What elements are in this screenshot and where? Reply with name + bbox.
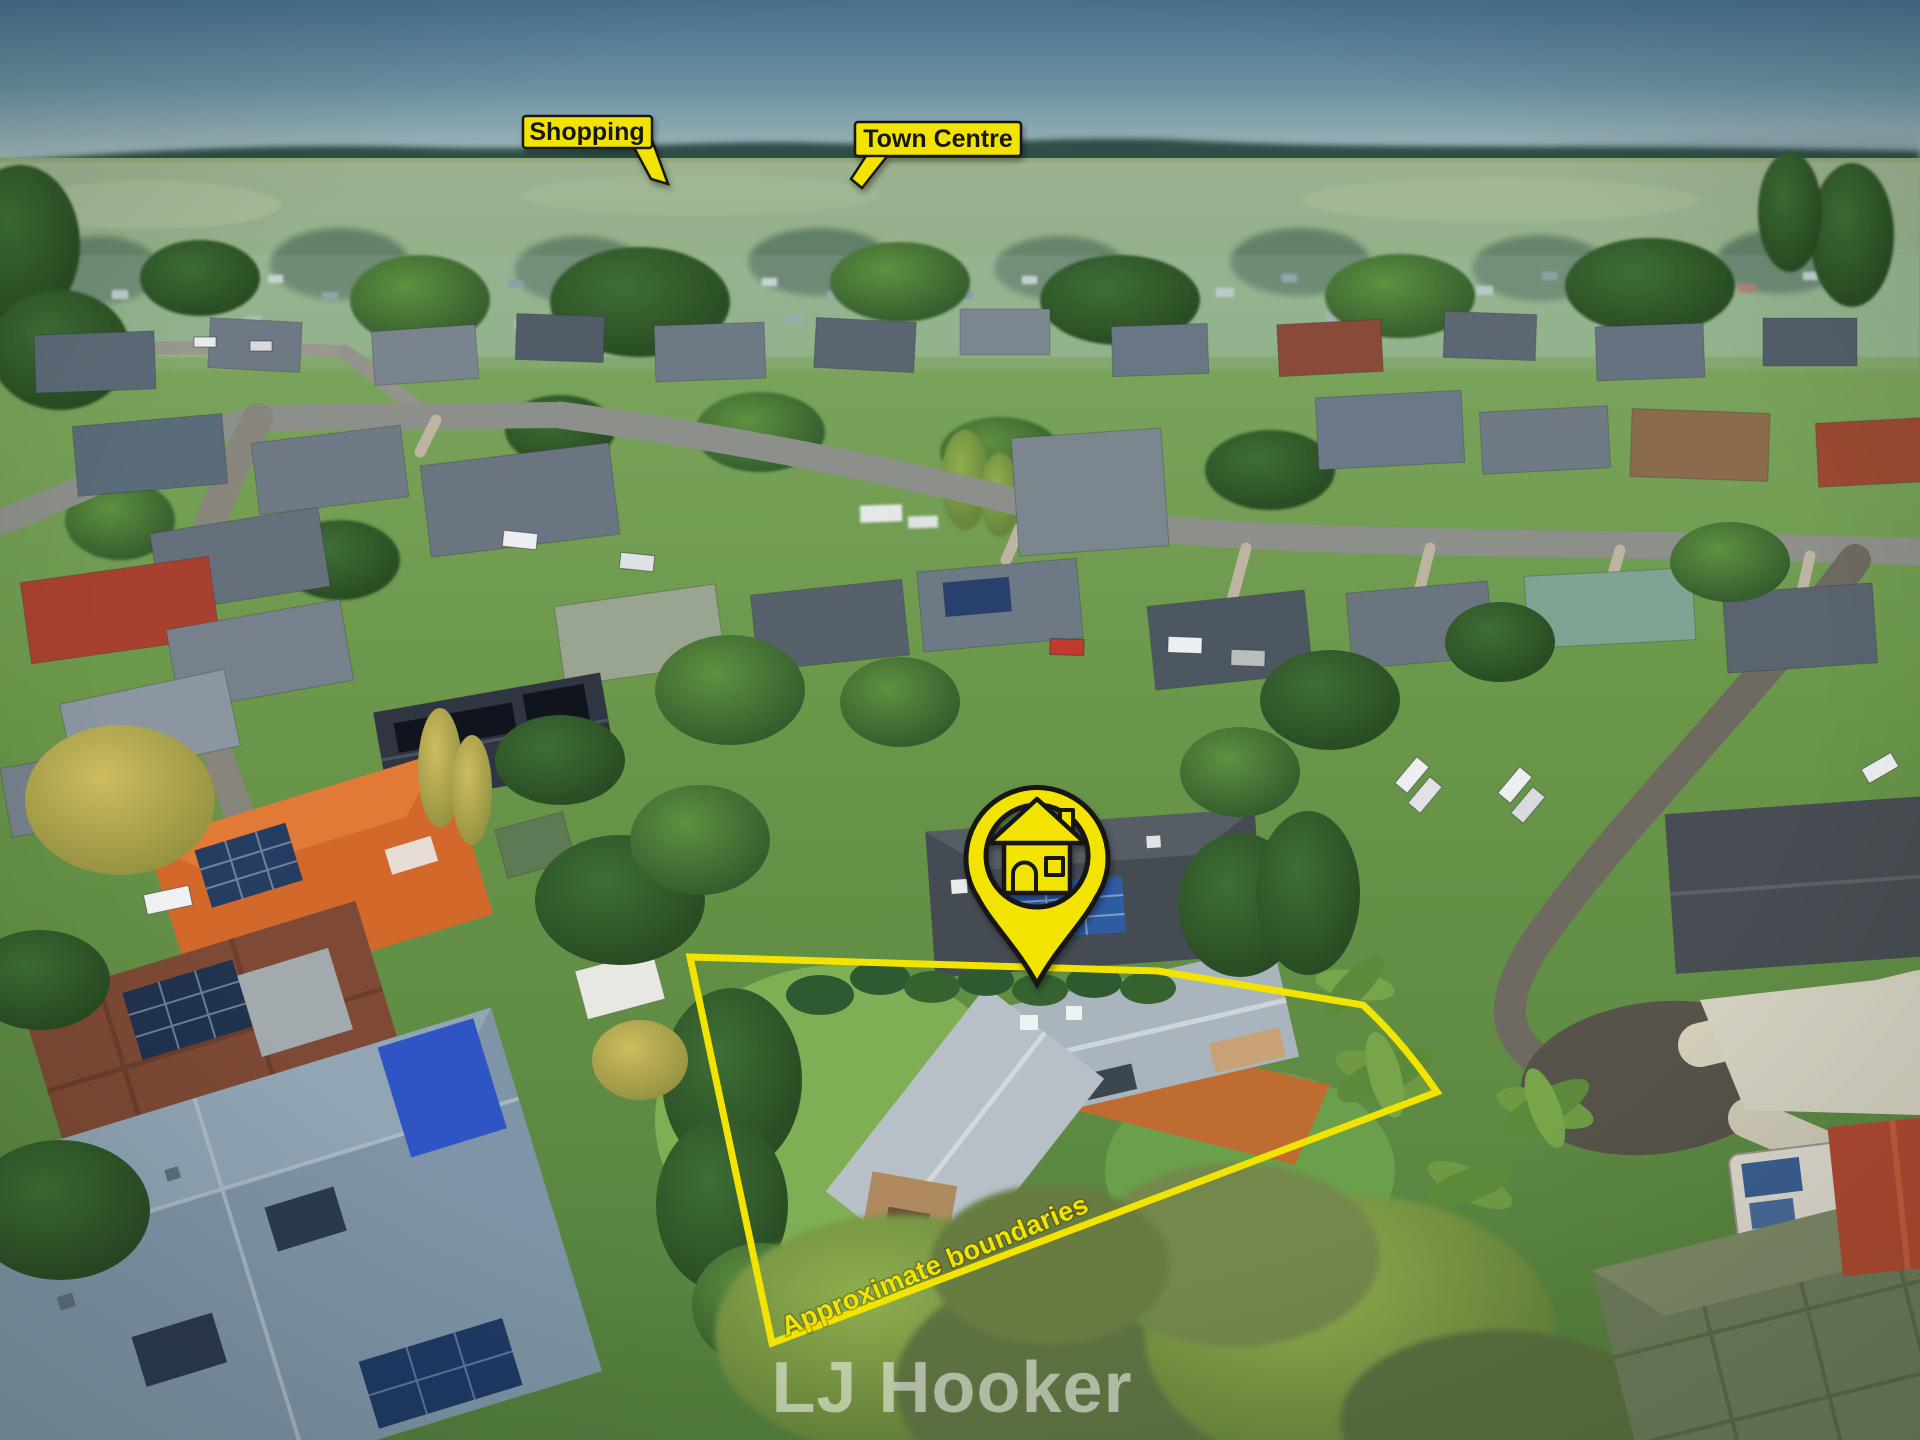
vignette: [0, 0, 1920, 1440]
aerial-photo: Approximate boundaries Shopping Town Cen…: [0, 0, 1920, 1440]
agency-watermark: LJ Hooker: [771, 1348, 1132, 1428]
shopping-callout-label: Shopping: [529, 118, 644, 146]
town-centre-callout-label: Town Centre: [863, 125, 1013, 153]
aerial-photo-scene: Approximate boundaries Shopping Town Cen…: [0, 0, 1920, 1440]
